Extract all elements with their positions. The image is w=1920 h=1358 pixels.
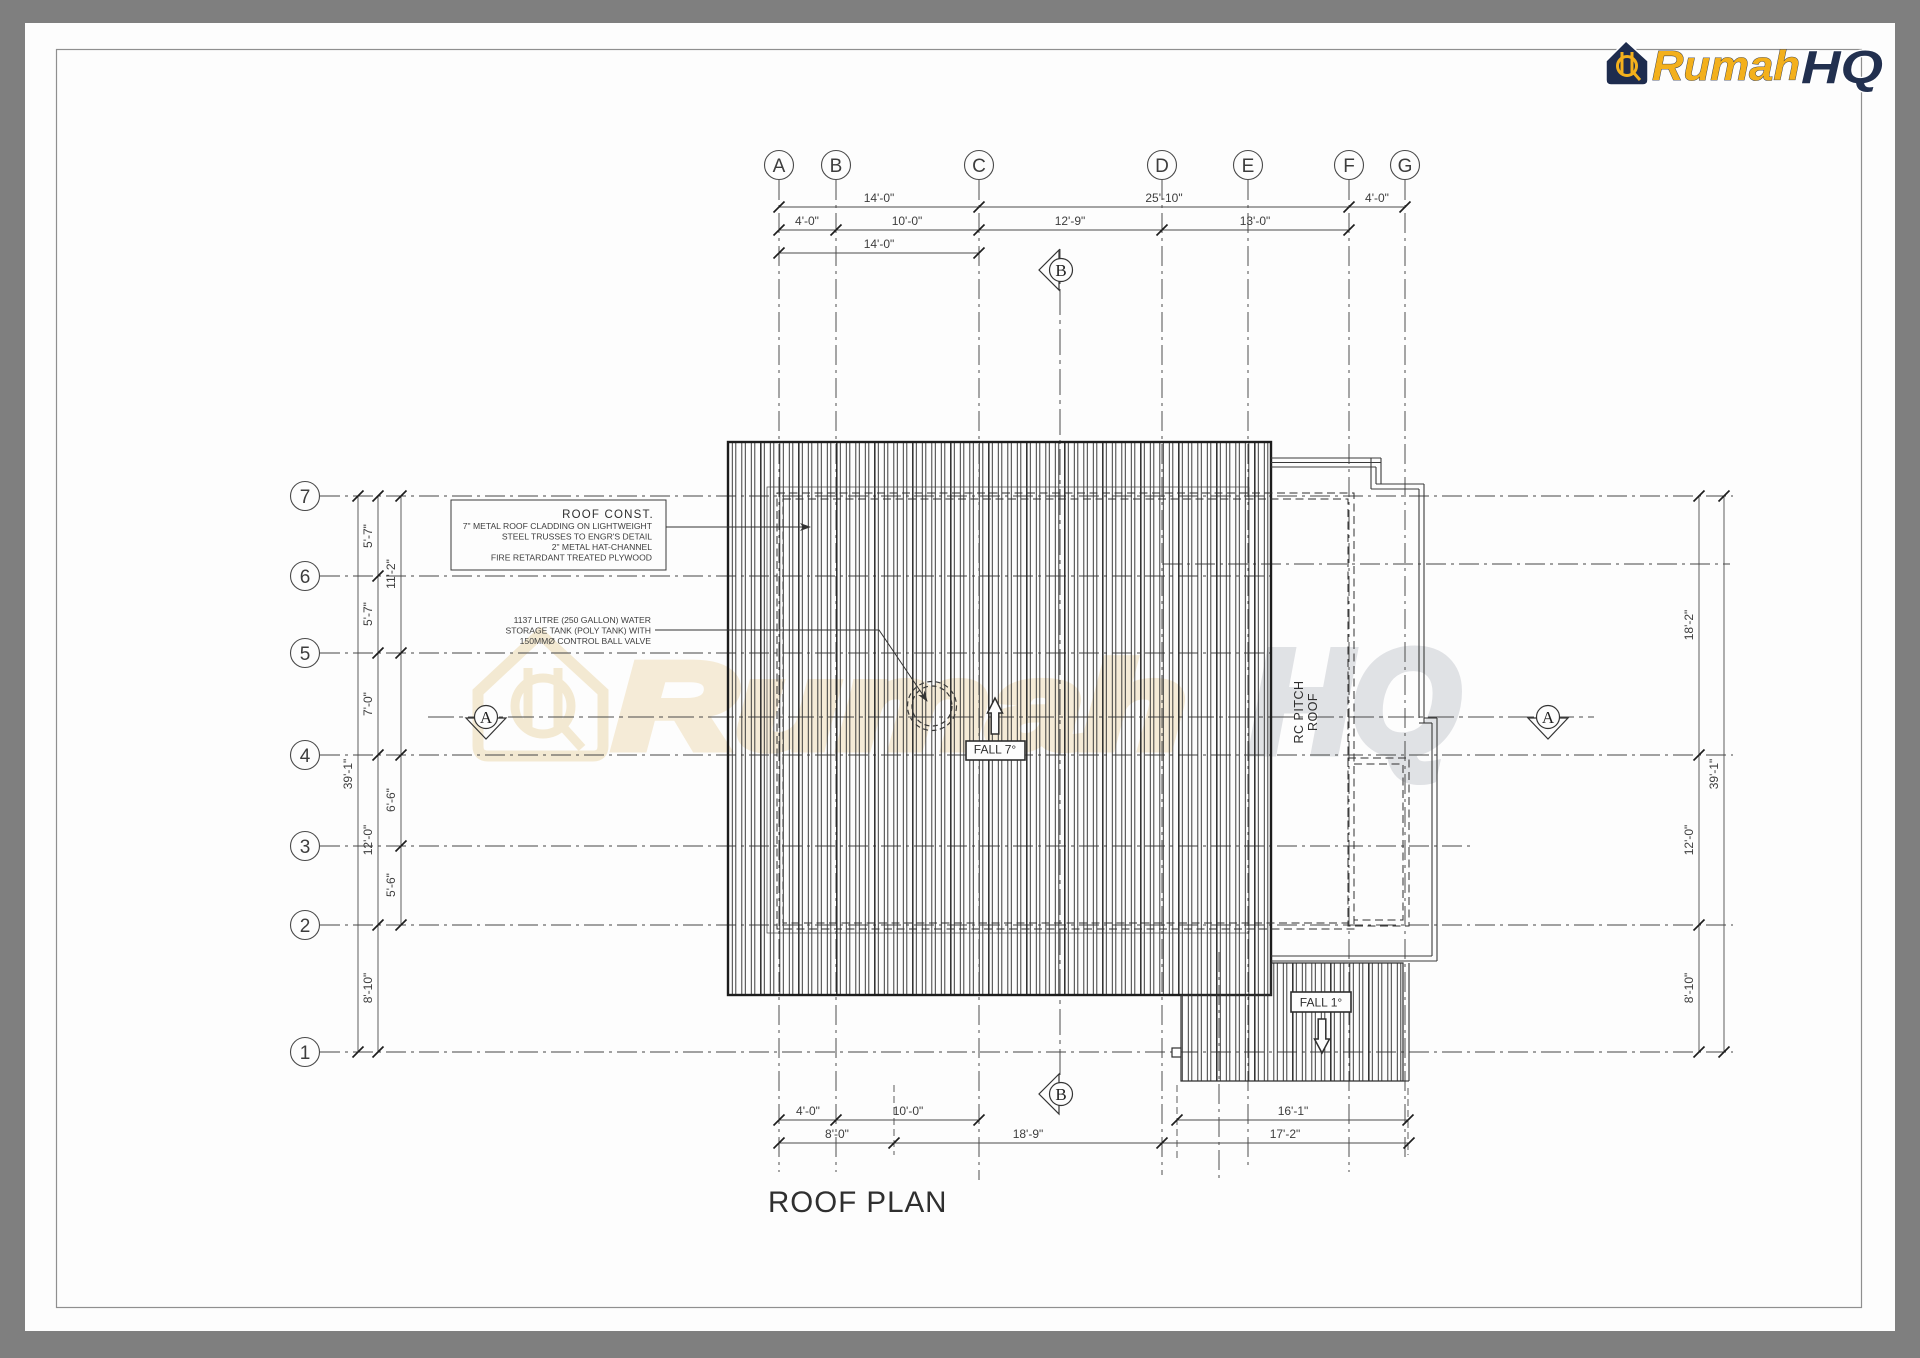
svg-text:39'-1": 39'-1" [341,759,355,790]
svg-text:12'-0": 12'-0" [361,825,375,856]
svg-text:Rumah: Rumah [1652,42,1800,89]
svg-text:1: 1 [300,1043,311,1064]
svg-text:14'-0": 14'-0" [864,237,895,251]
svg-text:8'-10": 8'-10" [361,973,375,1004]
svg-text:B: B [830,156,843,177]
svg-text:F: F [1343,156,1355,177]
svg-text:16'-1": 16'-1" [1278,1104,1309,1118]
svg-text:11'-2": 11'-2" [384,559,398,589]
svg-text:25'-10": 25'-10" [1145,191,1182,205]
svg-text:17'-2": 17'-2" [1270,1127,1301,1141]
svg-text:7: 7 [300,487,311,508]
svg-text:6'-6": 6'-6" [384,788,398,812]
svg-text:150MMØ CONTROL BALL VALVE: 150MMØ CONTROL BALL VALVE [520,636,652,646]
svg-text:STEEL TRUSSES TO ENGR'S DETAIL: STEEL TRUSSES TO ENGR'S DETAIL [502,532,652,542]
svg-text:4'-0": 4'-0" [1365,191,1389,205]
svg-text:FIRE RETARDANT TREATED PLYWOOD: FIRE RETARDANT TREATED PLYWOOD [491,553,652,563]
svg-text:18'-9": 18'-9" [1013,1127,1044,1141]
svg-text:C: C [972,156,986,177]
svg-text:3: 3 [300,837,311,858]
svg-text:2: 2 [300,916,311,937]
svg-text:12'-9": 12'-9" [1055,214,1086,228]
svg-text:E: E [1242,156,1255,177]
svg-text:ROOF CONST.: ROOF CONST. [562,509,654,521]
svg-text:7'-0": 7'-0" [361,692,375,716]
svg-text:10'-0": 10'-0" [893,1104,924,1118]
svg-text:5: 5 [300,644,311,665]
svg-text:4'-0": 4'-0" [795,214,819,228]
svg-text:STORAGE TANK (POLY TANK) WITH: STORAGE TANK (POLY TANK) WITH [506,626,651,636]
svg-text:A: A [1542,708,1555,727]
svg-text:10'-0": 10'-0" [892,214,923,228]
svg-text:14'-0": 14'-0" [864,191,895,205]
svg-text:5'-6": 5'-6" [384,873,398,897]
svg-text:A: A [773,156,786,177]
svg-text:HQ: HQ [1250,620,1460,783]
svg-text:RC PITCH: RC PITCH [1292,680,1306,743]
svg-text:13'-0": 13'-0" [1240,214,1271,228]
svg-text:5'-7": 5'-7" [361,524,375,548]
svg-text:4: 4 [300,746,311,767]
svg-text:B: B [1055,1085,1066,1104]
svg-text:4'-0": 4'-0" [796,1104,820,1118]
svg-text:D: D [1155,156,1169,177]
svg-text:8'-0": 8'-0" [825,1127,849,1141]
svg-text:2" METAL HAT-CHANNEL: 2" METAL HAT-CHANNEL [552,542,653,552]
svg-text:B: B [1055,261,1066,280]
svg-text:HQ: HQ [1801,41,1883,93]
svg-text:8'-10": 8'-10" [1682,973,1696,1004]
svg-text:ROOF: ROOF [1306,693,1320,731]
svg-text:12'-0": 12'-0" [1682,825,1696,856]
svg-text:18'-2": 18'-2" [1682,610,1696,641]
svg-text:7" METAL ROOF CLADDING ON LIGH: 7" METAL ROOF CLADDING ON LIGHTWEIGHT [463,521,653,531]
svg-text:39'-1": 39'-1" [1707,759,1721,790]
svg-text:5'-7": 5'-7" [361,602,375,626]
svg-text:A: A [480,708,493,727]
svg-text:FALL 1°: FALL 1° [1300,996,1343,1010]
svg-text:ROOF PLAN: ROOF PLAN [768,1186,947,1219]
svg-text:G: G [1398,156,1413,177]
svg-text:FALL 7°: FALL 7° [974,743,1017,757]
svg-text:6: 6 [300,567,311,588]
svg-text:1137 LITRE (250 GALLON) WATER: 1137 LITRE (250 GALLON) WATER [514,615,651,625]
